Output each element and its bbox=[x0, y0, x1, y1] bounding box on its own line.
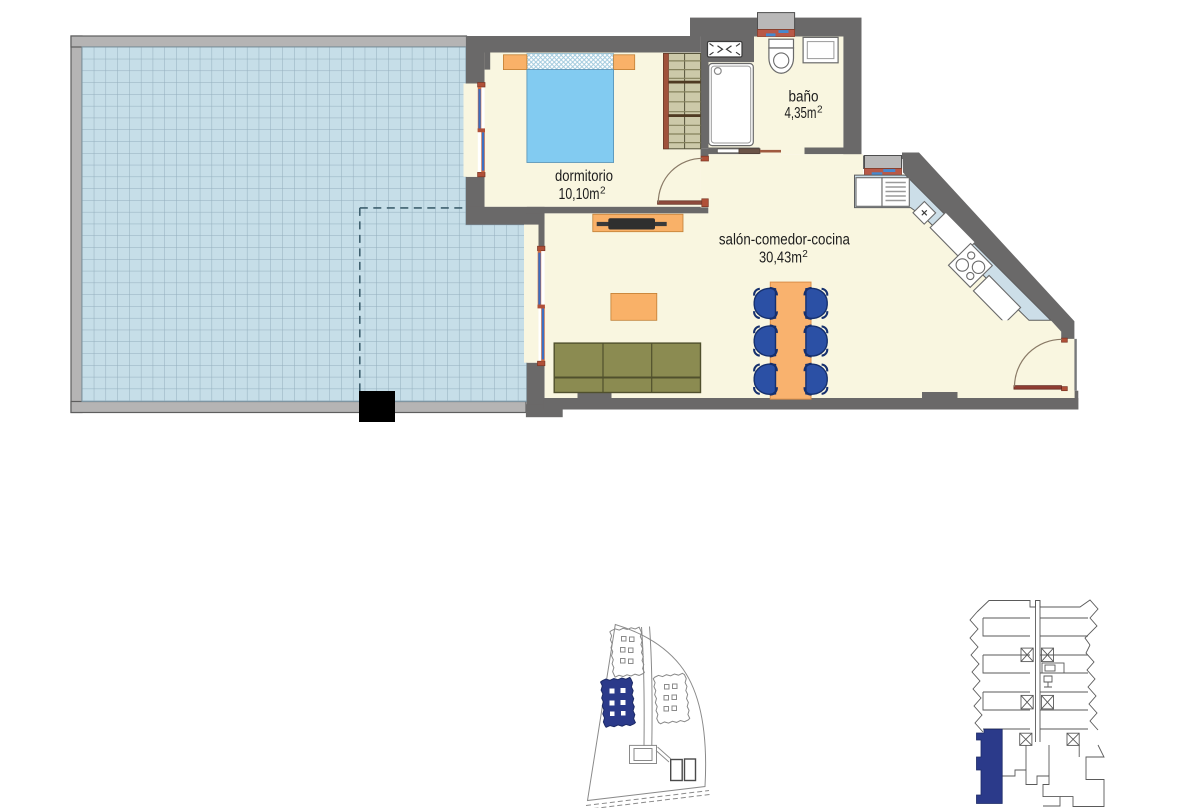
svg-text:baño: baño bbox=[789, 89, 819, 106]
svg-text:dormitorio: dormitorio bbox=[555, 168, 613, 185]
svg-text:2: 2 bbox=[817, 105, 823, 116]
svg-text:10,10m: 10,10m bbox=[559, 186, 600, 203]
svg-text:2: 2 bbox=[600, 186, 606, 197]
svg-text:30,43m: 30,43m bbox=[759, 249, 802, 266]
svg-text:salón-comedor-cocina: salón-comedor-cocina bbox=[719, 232, 850, 249]
svg-text:4,35m: 4,35m bbox=[785, 105, 817, 122]
svg-text:2: 2 bbox=[802, 249, 808, 260]
